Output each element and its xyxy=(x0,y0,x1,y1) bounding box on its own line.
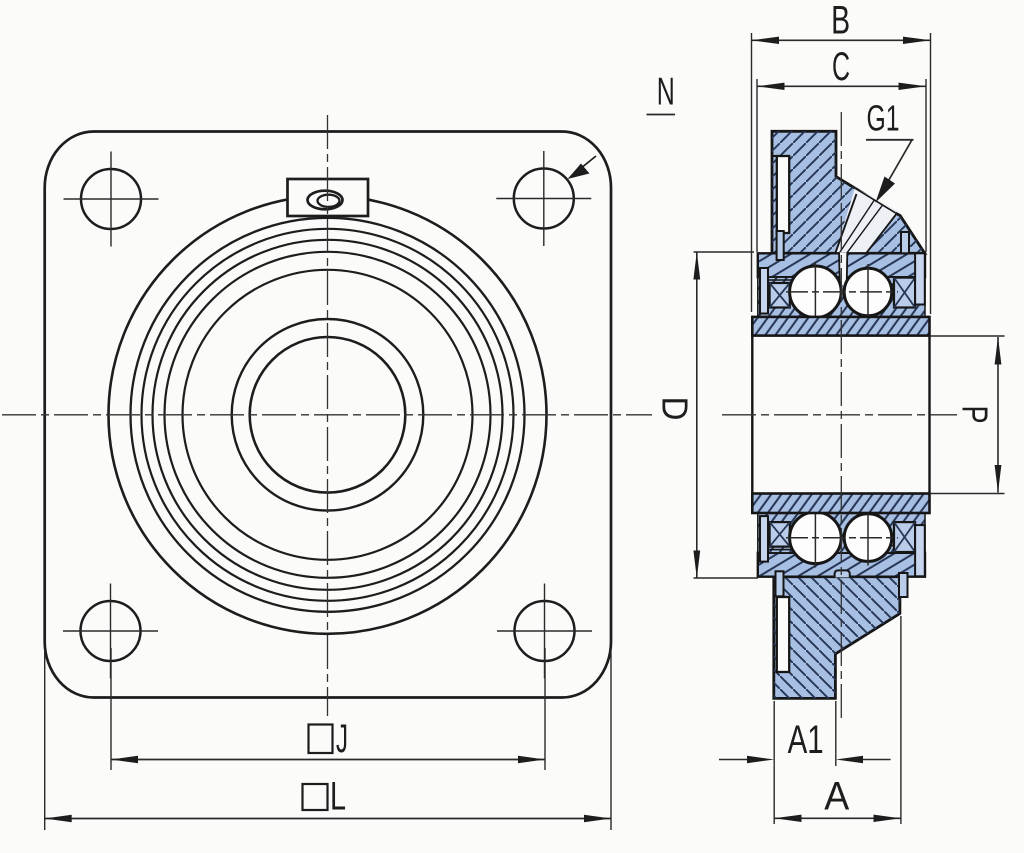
svg-text:C: C xyxy=(832,45,850,89)
svg-text:N: N xyxy=(657,70,675,113)
svg-text:D: D xyxy=(655,397,696,421)
svg-text:B: B xyxy=(831,0,850,43)
svg-text:L: L xyxy=(330,775,346,819)
svg-text:P: P xyxy=(955,406,996,424)
svg-text:A: A xyxy=(824,775,849,819)
svg-text:G1: G1 xyxy=(867,97,900,138)
svg-text:J: J xyxy=(336,717,348,761)
svg-text:A1: A1 xyxy=(788,718,824,762)
